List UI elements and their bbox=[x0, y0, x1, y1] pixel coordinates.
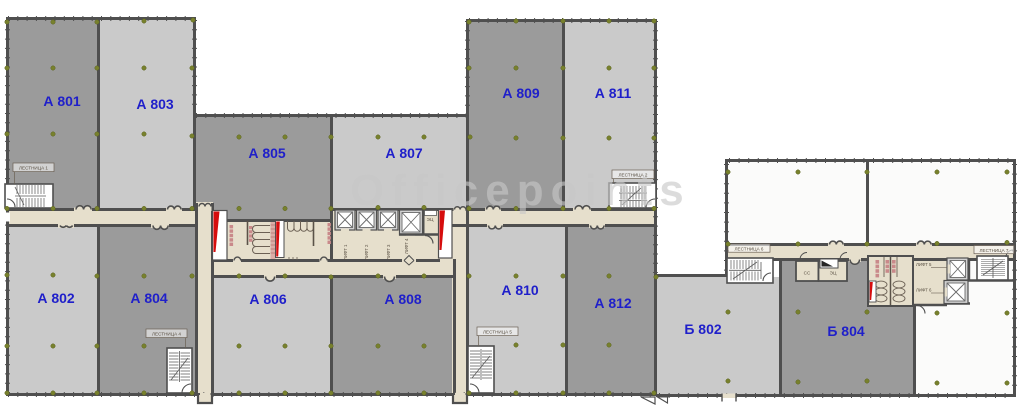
svg-text:ЛИФТ 4: ЛИФТ 4 bbox=[404, 238, 409, 254]
svg-text:А 804: А 804 bbox=[130, 290, 168, 306]
svg-text:ЛЕСТНИЦА 5: ЛЕСТНИЦА 5 bbox=[483, 330, 512, 335]
svg-text:А 802: А 802 bbox=[37, 290, 75, 306]
svg-text:ЛЕСТНИЦА 1: ЛЕСТНИЦА 1 bbox=[19, 166, 48, 171]
svg-text:А 807: А 807 bbox=[385, 145, 423, 161]
svg-text:А 805: А 805 bbox=[248, 145, 286, 161]
svg-text:А 811: А 811 bbox=[595, 85, 632, 101]
svg-text:ЛИФТ 6: ЛИФТ 6 bbox=[916, 288, 932, 293]
svg-text:ЛИФТ 3: ЛИФТ 3 bbox=[386, 244, 391, 260]
svg-text:Officepoints: Officepoints bbox=[350, 166, 691, 215]
svg-text:ЛЕСТНИЦА 7: ЛЕСТНИЦА 7 bbox=[980, 248, 1009, 253]
svg-text:СС: СС bbox=[804, 271, 811, 276]
svg-text:А 806: А 806 bbox=[249, 291, 287, 307]
svg-text:ЛИФТ 5: ЛИФТ 5 bbox=[916, 262, 932, 267]
svg-text:ЭЦ: ЭЦ bbox=[830, 271, 837, 276]
svg-text:Б 802: Б 802 bbox=[684, 321, 722, 337]
svg-text:А 810: А 810 bbox=[501, 282, 539, 298]
svg-text:Б 804: Б 804 bbox=[827, 323, 865, 339]
svg-text:А 803: А 803 bbox=[136, 96, 174, 112]
svg-text:ЭЦ: ЭЦ bbox=[427, 217, 434, 222]
svg-text:А 809: А 809 bbox=[502, 85, 540, 101]
svg-text:ЛЕСТНИЦА 4: ЛЕСТНИЦА 4 bbox=[152, 332, 181, 337]
svg-text:А 808: А 808 bbox=[384, 291, 422, 307]
svg-text:ЛЕСТНИЦА 6: ЛЕСТНИЦА 6 bbox=[735, 246, 764, 251]
svg-text:ЛИФТ 2: ЛИФТ 2 bbox=[364, 244, 369, 260]
svg-text:ЛИФТ 1: ЛИФТ 1 bbox=[343, 244, 348, 260]
svg-text:А 812: А 812 bbox=[594, 295, 632, 311]
svg-text:А 801: А 801 bbox=[43, 93, 81, 109]
